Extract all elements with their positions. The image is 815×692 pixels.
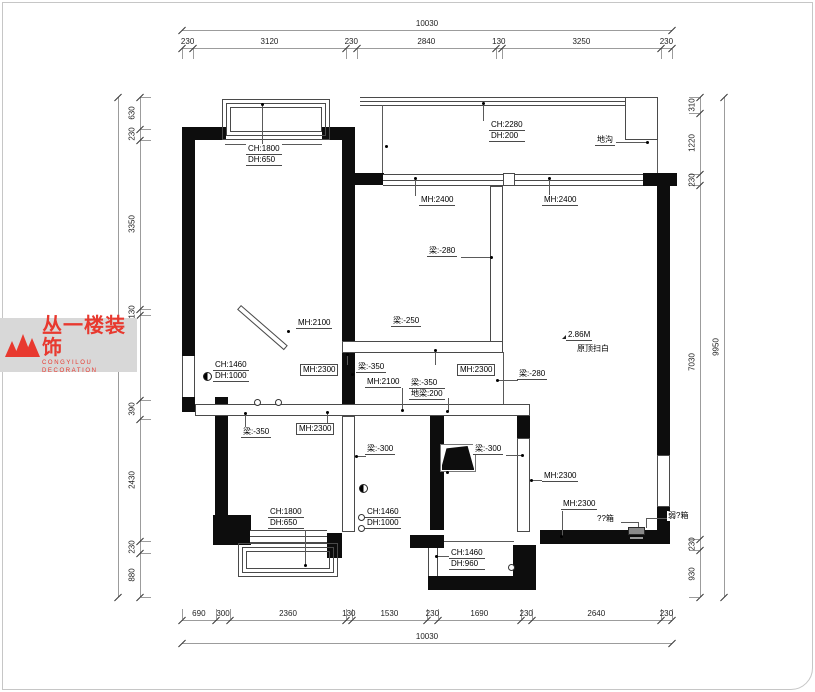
ceiling-point-dot <box>385 145 388 148</box>
witness-line <box>141 309 151 310</box>
wall-segment <box>428 576 536 590</box>
leader-dot <box>435 555 438 558</box>
dimension-value: 390 <box>128 403 137 416</box>
window-small <box>428 548 438 576</box>
label-door-height: MH:2300 <box>542 471 578 482</box>
witness-line <box>346 49 347 59</box>
label-door-height: MH:2300 <box>457 364 495 376</box>
balcony-edge-line <box>382 105 383 173</box>
label-window-height: MH:2400 <box>542 195 578 206</box>
dimension-value: 3350 <box>128 215 137 233</box>
leader-line <box>498 380 518 381</box>
leader-dot <box>401 409 404 412</box>
leader-line <box>549 179 550 196</box>
bath-bottom-line <box>444 541 514 542</box>
fixture-circle <box>254 399 261 406</box>
dimension-value: 300 <box>216 609 229 618</box>
leader-line <box>562 511 563 536</box>
label-beam: 梁:-350 <box>356 362 386 373</box>
leader-dot <box>646 141 649 144</box>
bay-line <box>246 551 330 569</box>
dimension-value: 230 <box>181 37 194 46</box>
label-line: CH:2280 <box>489 120 525 131</box>
partition-wall <box>342 416 355 532</box>
witness-line <box>141 400 151 401</box>
label-line: CH:1460 <box>449 548 485 559</box>
label-bay-window-tl: CH:1800 DH:650 <box>246 144 282 166</box>
label-balcony-sill: CH:2280 DH:200 <box>489 120 525 142</box>
leader-dot <box>521 454 524 457</box>
dimension-value: 230 <box>345 37 358 46</box>
wall-segment <box>513 545 536 578</box>
window-bay-opening <box>250 530 327 543</box>
label-door-height: MH:2100 <box>296 318 332 329</box>
leader-dot <box>326 411 329 414</box>
wall-segment <box>342 140 355 412</box>
label-door-height: MH:2300 <box>296 423 334 435</box>
dimension-line <box>140 97 141 597</box>
label-line: DH:200 <box>489 131 525 142</box>
witness-line <box>141 315 151 316</box>
label-beam: 梁:-300 <box>365 444 395 455</box>
dimension-line <box>182 30 672 31</box>
balcony-window <box>383 174 503 186</box>
leader-line <box>616 142 647 143</box>
witness-line <box>182 49 183 59</box>
label-door-height: MH:2300 <box>300 364 338 376</box>
witness-line <box>230 609 231 619</box>
wall-segment <box>643 173 677 186</box>
label-line: CH:1800 <box>246 144 282 155</box>
witness-line <box>141 541 151 542</box>
label-beam: 梁:-280 <box>517 369 547 380</box>
brand-watermark: 丛一楼装饰 CONGYILOU DECORATION <box>0 318 137 372</box>
dimension-value: 2360 <box>279 609 297 618</box>
dimension-value: 630 <box>128 106 137 119</box>
balcony-window <box>515 174 643 186</box>
label-beam: 梁:-350 <box>241 427 271 438</box>
wall-segment <box>182 396 195 412</box>
leader-dot <box>244 412 247 415</box>
switch-symbol <box>359 484 368 493</box>
leader-line <box>305 530 306 566</box>
leader-line <box>483 104 484 121</box>
partition-wall <box>517 438 530 532</box>
dimension-value: 230 <box>688 173 697 186</box>
dimension-value: 1690 <box>470 609 488 618</box>
balcony-outer-rail <box>360 97 625 106</box>
wall-segment <box>355 173 384 185</box>
dimension-value: 230 <box>128 128 137 141</box>
dimension-value: 2840 <box>417 37 435 46</box>
dimension-value: 230 <box>660 609 673 618</box>
label-ceiling-note: 原顶扫白 <box>576 344 610 354</box>
bay-window-top <box>222 99 330 140</box>
brand-logo-icon <box>5 332 39 359</box>
leader-dot <box>355 455 358 458</box>
dimension-value: 230 <box>688 538 697 551</box>
label-line: DH:1000 <box>213 371 249 382</box>
witness-line <box>141 97 151 98</box>
flue-duct-symbol <box>440 444 476 472</box>
wall-segment <box>213 515 251 545</box>
brand-text: 丛一楼装饰 CONGYILOU DECORATION <box>42 315 137 375</box>
label-line: DH:960 <box>449 559 485 570</box>
window-mullion <box>503 173 515 186</box>
witness-line <box>357 49 358 59</box>
dimension-line <box>182 48 672 49</box>
partition-wall <box>342 341 503 353</box>
label-beam: 梁:-280 <box>427 246 457 257</box>
label-beam: 梁:-300 <box>473 444 503 455</box>
dimension-value: 130 <box>342 609 355 618</box>
dimension-value: 880 <box>128 568 137 581</box>
dimension-value: 2640 <box>587 609 605 618</box>
electric-box-symbol <box>628 527 645 535</box>
fixture-circle <box>358 514 365 521</box>
dimension-value: 690 <box>192 609 205 618</box>
dimension-value: 310 <box>688 98 697 111</box>
witness-line <box>672 49 673 59</box>
dimension-value: 230 <box>660 37 673 46</box>
leader-line <box>262 105 263 145</box>
dimension-value: 1530 <box>380 609 398 618</box>
label-beam: 梁:-250 <box>391 316 421 327</box>
witness-line <box>689 597 699 598</box>
witness-line <box>193 49 194 59</box>
leader-dot <box>261 103 264 106</box>
bay-line <box>230 107 322 132</box>
witness-line <box>496 49 497 59</box>
witness-line <box>141 553 151 554</box>
label-line: CH:1800 <box>268 507 304 518</box>
label-window-left: CH:1460 DH:1000 <box>213 360 249 382</box>
wall-segment <box>182 127 226 140</box>
label-window-bm: CH:1460 DH:1000 <box>365 507 401 529</box>
label-floor-trench: 地沟 <box>595 135 615 146</box>
dimension-value: 10030 <box>416 19 438 28</box>
label-bay-window-bl: CH:1800 DH:650 <box>268 507 304 529</box>
leader-dot <box>346 353 349 356</box>
dimension-value: 230 <box>128 540 137 553</box>
dimension-value: 230 <box>519 609 532 618</box>
leader-dot <box>446 410 449 413</box>
label-line: CH:1460 <box>213 360 249 371</box>
fixture-circle <box>275 399 282 406</box>
dimension-line <box>182 643 672 644</box>
leader-line <box>506 455 522 456</box>
dimension-value: 130 <box>492 37 505 46</box>
leader-dot <box>560 535 563 538</box>
label-line: 地梁:200 <box>409 389 445 400</box>
leader-line <box>646 518 647 528</box>
leader-dot <box>530 479 533 482</box>
label-ceiling-elevation: 2.86M <box>566 330 592 341</box>
dimension-value: 2430 <box>128 471 137 489</box>
floor-plan-sheet: 丛一楼装饰 CONGYILOU DECORATION 1003023031202… <box>0 0 815 692</box>
label-line: CH:1460 <box>365 507 401 518</box>
label-line: DH:650 <box>246 155 282 166</box>
partition-wall <box>657 455 670 507</box>
leader-line <box>646 518 667 519</box>
leader-line <box>448 398 449 411</box>
electric-box-caption <box>630 537 643 539</box>
witness-line <box>141 597 151 598</box>
logo-peak-right <box>24 338 40 357</box>
leader-dot <box>490 256 493 259</box>
partition-wall <box>490 186 503 353</box>
dimension-value: 230 <box>426 609 439 618</box>
label-weak-electric-box: 弱?箱 <box>667 511 689 521</box>
leader-line <box>347 355 348 365</box>
fixture-circle <box>508 564 515 571</box>
leader-line <box>402 388 403 410</box>
label-strong-electric-box: ??箱 <box>596 514 615 524</box>
dimension-value: 3120 <box>261 37 279 46</box>
flue-fill <box>442 446 474 470</box>
leader-dot <box>414 177 417 180</box>
label-window-height: MH:2400 <box>419 195 455 206</box>
witness-line <box>502 49 503 59</box>
leader-line <box>245 414 246 428</box>
brand-name-cn: 丛一楼装饰 <box>42 315 137 359</box>
wall-segment <box>657 186 670 455</box>
label-line: 梁:-350 <box>409 378 445 389</box>
leader-line <box>461 257 491 258</box>
leader-dot <box>304 564 307 567</box>
ceiling-point-dot <box>446 471 449 474</box>
witness-line <box>141 129 151 130</box>
label-window-b960: CH:1460 DH:960 <box>449 548 485 570</box>
dimension-value: 1220 <box>688 134 697 152</box>
leader-line <box>621 522 639 523</box>
dimension-value: 10030 <box>416 632 438 641</box>
leader-dot <box>287 330 290 333</box>
leader-line <box>415 179 416 196</box>
dimension-value: 7030 <box>688 353 697 371</box>
witness-line <box>141 140 151 141</box>
wall-segment <box>182 127 195 358</box>
leader-line <box>435 351 436 365</box>
leader-dot <box>496 379 499 382</box>
switch-symbol <box>203 372 212 381</box>
label-door-height: MH:2300 <box>561 499 597 510</box>
witness-line <box>661 49 662 59</box>
witness-line <box>182 609 183 619</box>
brand-name-en: CONGYILOU DECORATION <box>42 359 137 375</box>
bay-window-bottom <box>238 543 338 577</box>
dimension-value: 930 <box>688 567 697 580</box>
witness-line <box>141 419 151 420</box>
leader-dot <box>351 373 354 376</box>
witness-line <box>689 113 699 114</box>
window-left-wall <box>182 356 195 397</box>
label-beam-floor: 梁:-350 地梁:200 <box>409 378 445 400</box>
right-edge-line <box>657 140 658 173</box>
balcony-step-edge <box>625 97 658 140</box>
dimension-line <box>724 97 725 597</box>
label-line: DH:650 <box>268 518 304 529</box>
fixture-circle <box>358 525 365 532</box>
leader-dot <box>482 102 485 105</box>
label-door-height: MH:2100 <box>365 377 401 388</box>
kitchen-edge-line <box>503 352 504 404</box>
dimension-value: 3250 <box>572 37 590 46</box>
leader-dot <box>434 349 437 352</box>
dimension-value: 9950 <box>712 338 721 356</box>
leader-dot <box>548 177 551 180</box>
wall-segment <box>410 535 444 548</box>
label-line: DH:1000 <box>365 518 401 529</box>
